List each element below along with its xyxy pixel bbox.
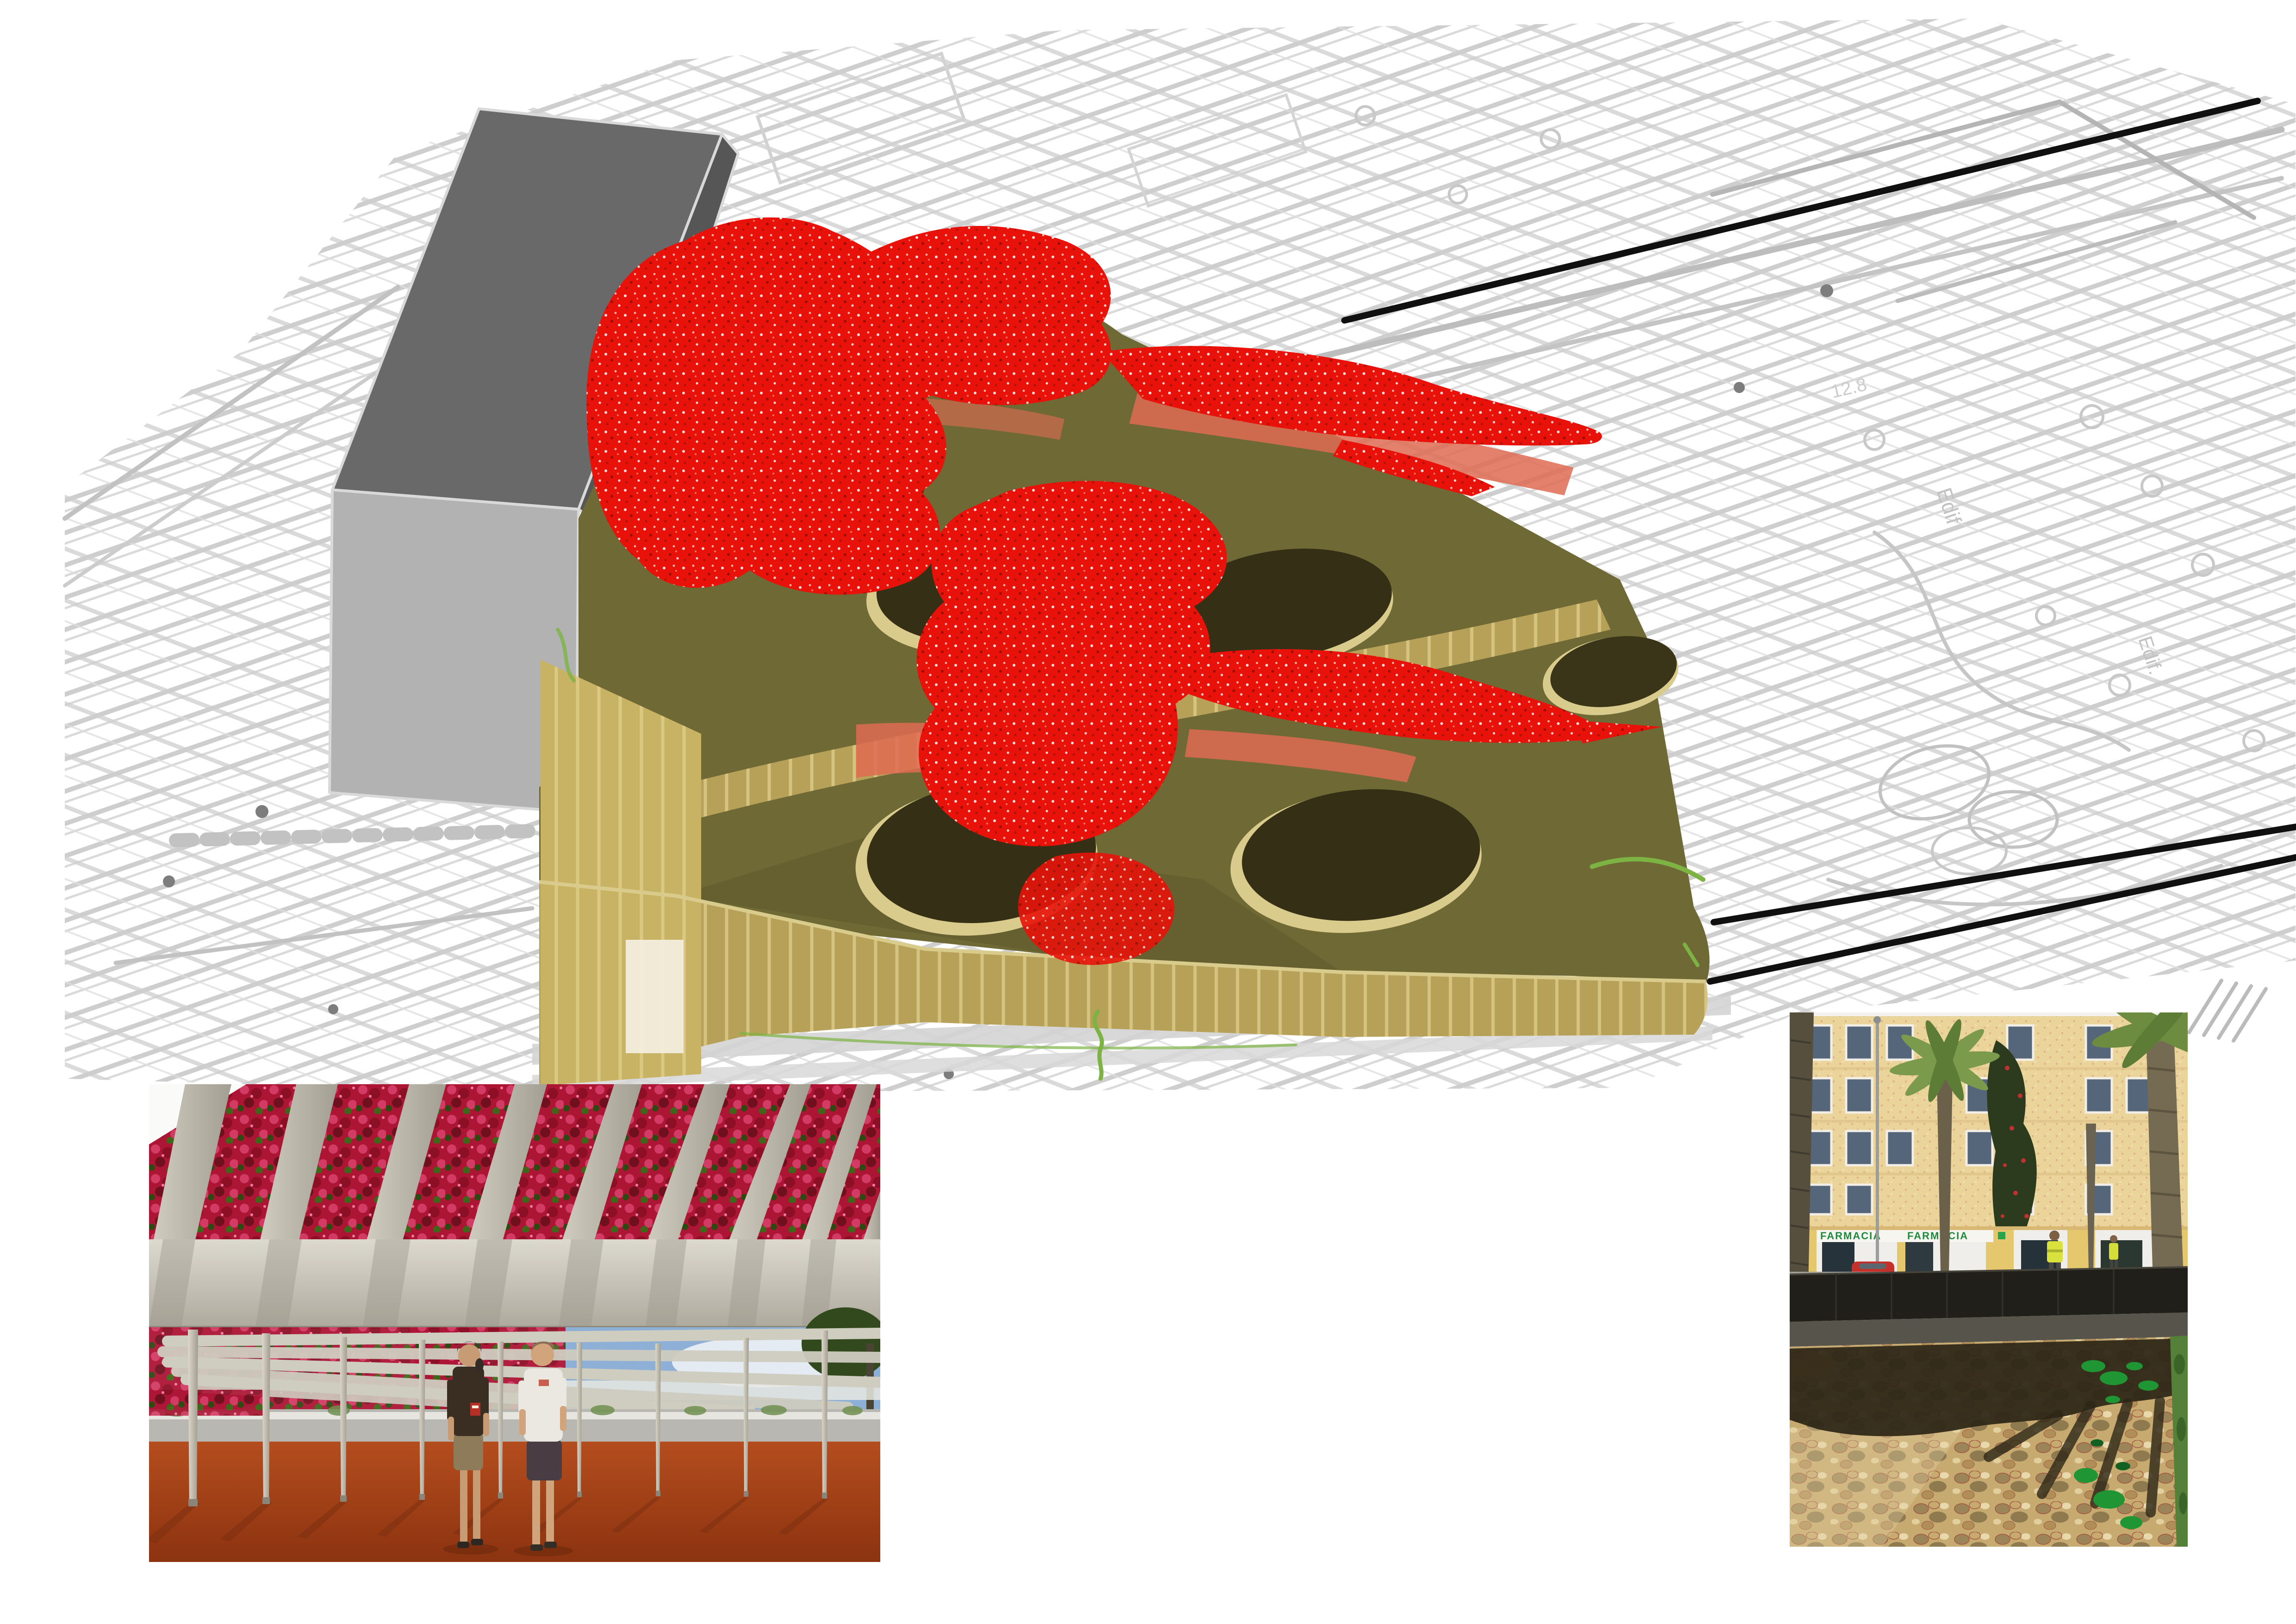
pharmacy-cross: [1998, 1232, 2005, 1239]
pergola-photo: [149, 1084, 880, 1562]
podium-left-notch: [626, 940, 684, 1053]
presentation-board: Edif Edif. 12.8: [0, 0, 2296, 1624]
site-plan-and-model: Edif Edif. 12.8: [0, 0, 2296, 1130]
pharmacy-sign-right: FARMACIA: [1907, 1230, 1968, 1242]
pharmacy-sign-left: FARMACIA: [1820, 1230, 1881, 1242]
site-fence: [1790, 1267, 2188, 1347]
canopy-south-patch: [1018, 853, 1174, 965]
street-photo: FARMACIA FARMACIA: [1790, 1012, 2188, 1547]
terracotta-ground: [149, 1442, 880, 1562]
canopy-north: [856, 226, 1111, 405]
